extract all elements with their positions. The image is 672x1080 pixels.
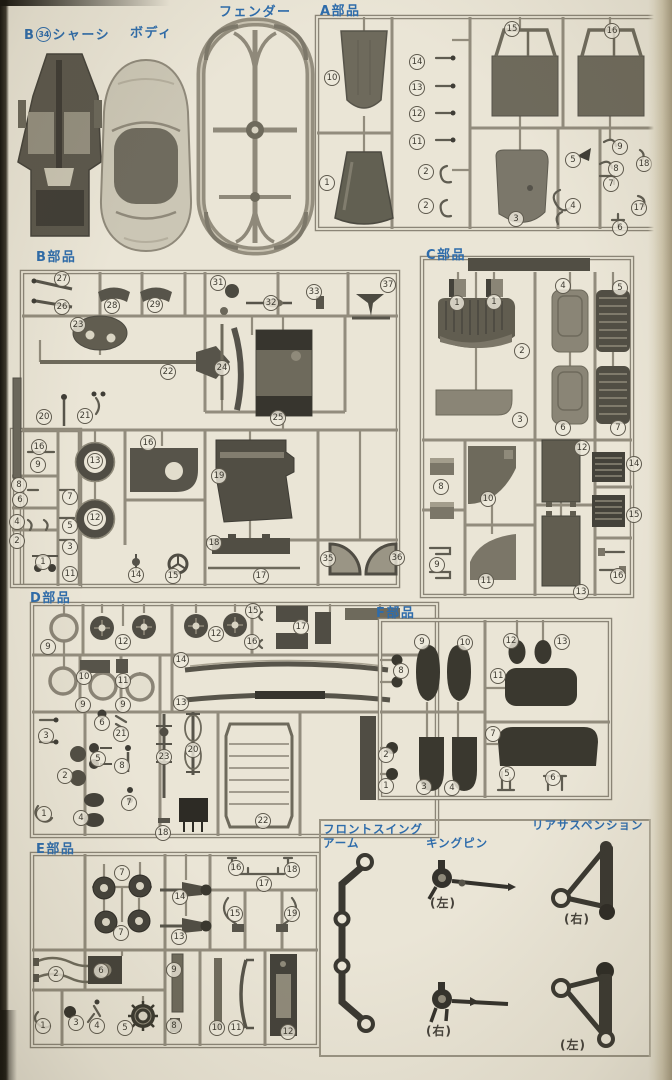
photo-left-edge bbox=[0, 0, 9, 1080]
sprue-b-drawing bbox=[12, 272, 398, 586]
front-swing-arm-drawing bbox=[336, 855, 374, 1031]
bottom-loose-parts bbox=[320, 820, 650, 1056]
rear-suspension-right-caption: (右) bbox=[564, 910, 590, 927]
dark-wheels bbox=[90, 613, 247, 640]
king-pin-left-caption: (左) bbox=[430, 894, 456, 911]
rear-suspension-right-drawing bbox=[553, 841, 615, 920]
king-pin-right-caption: (右) bbox=[426, 1022, 452, 1039]
fender-part-drawing bbox=[201, 22, 310, 251]
section-label-f: F部品 bbox=[376, 602, 415, 621]
rear-suspension-left-caption: (左) bbox=[560, 1036, 586, 1053]
front-swing-arm-label-line1: フロントスイング bbox=[323, 822, 423, 836]
chassis-label: B34シャーシ bbox=[24, 24, 110, 43]
fender-label: フェンダー bbox=[219, 1, 292, 20]
body-part-drawing bbox=[101, 60, 191, 251]
photo-top-edge bbox=[0, 0, 170, 6]
photo-right-edge bbox=[648, 0, 672, 1080]
photo-bottom-left-edge bbox=[0, 1010, 17, 1080]
section-label-e: E部品 bbox=[36, 838, 75, 857]
parts-diagram-page: 1011413121122151635981874176272628293132… bbox=[0, 0, 672, 1080]
rear-suspension-label: リアサスペンション bbox=[532, 818, 643, 832]
sprue-d-drawing bbox=[32, 604, 437, 836]
king-pin-label: キングピン bbox=[426, 836, 488, 850]
section-label-c: C部品 bbox=[426, 244, 466, 263]
sprue-c-drawing bbox=[422, 258, 632, 596]
sprue-f-drawing bbox=[380, 620, 610, 798]
sprue-a-drawing bbox=[317, 17, 657, 229]
chassis-prefix: B bbox=[24, 28, 35, 43]
section-label-d: D部品 bbox=[30, 587, 71, 606]
section-label-a: A部品 bbox=[320, 0, 361, 19]
section-label-b: B部品 bbox=[36, 246, 76, 265]
front-swing-arm-label: フロントスイングアーム bbox=[323, 822, 423, 850]
chassis-number-badge: 34 bbox=[36, 27, 51, 42]
sprue-e-drawing bbox=[32, 854, 318, 1046]
front-swing-arm-label-line2: アーム bbox=[323, 836, 423, 850]
body-label: ボディ bbox=[130, 22, 173, 41]
rear-suspension-left-drawing bbox=[553, 962, 614, 1046]
chassis-name: シャーシ bbox=[52, 28, 110, 43]
chassis-part-drawing bbox=[18, 54, 102, 236]
king-pin-right-drawing bbox=[431, 982, 508, 1022]
